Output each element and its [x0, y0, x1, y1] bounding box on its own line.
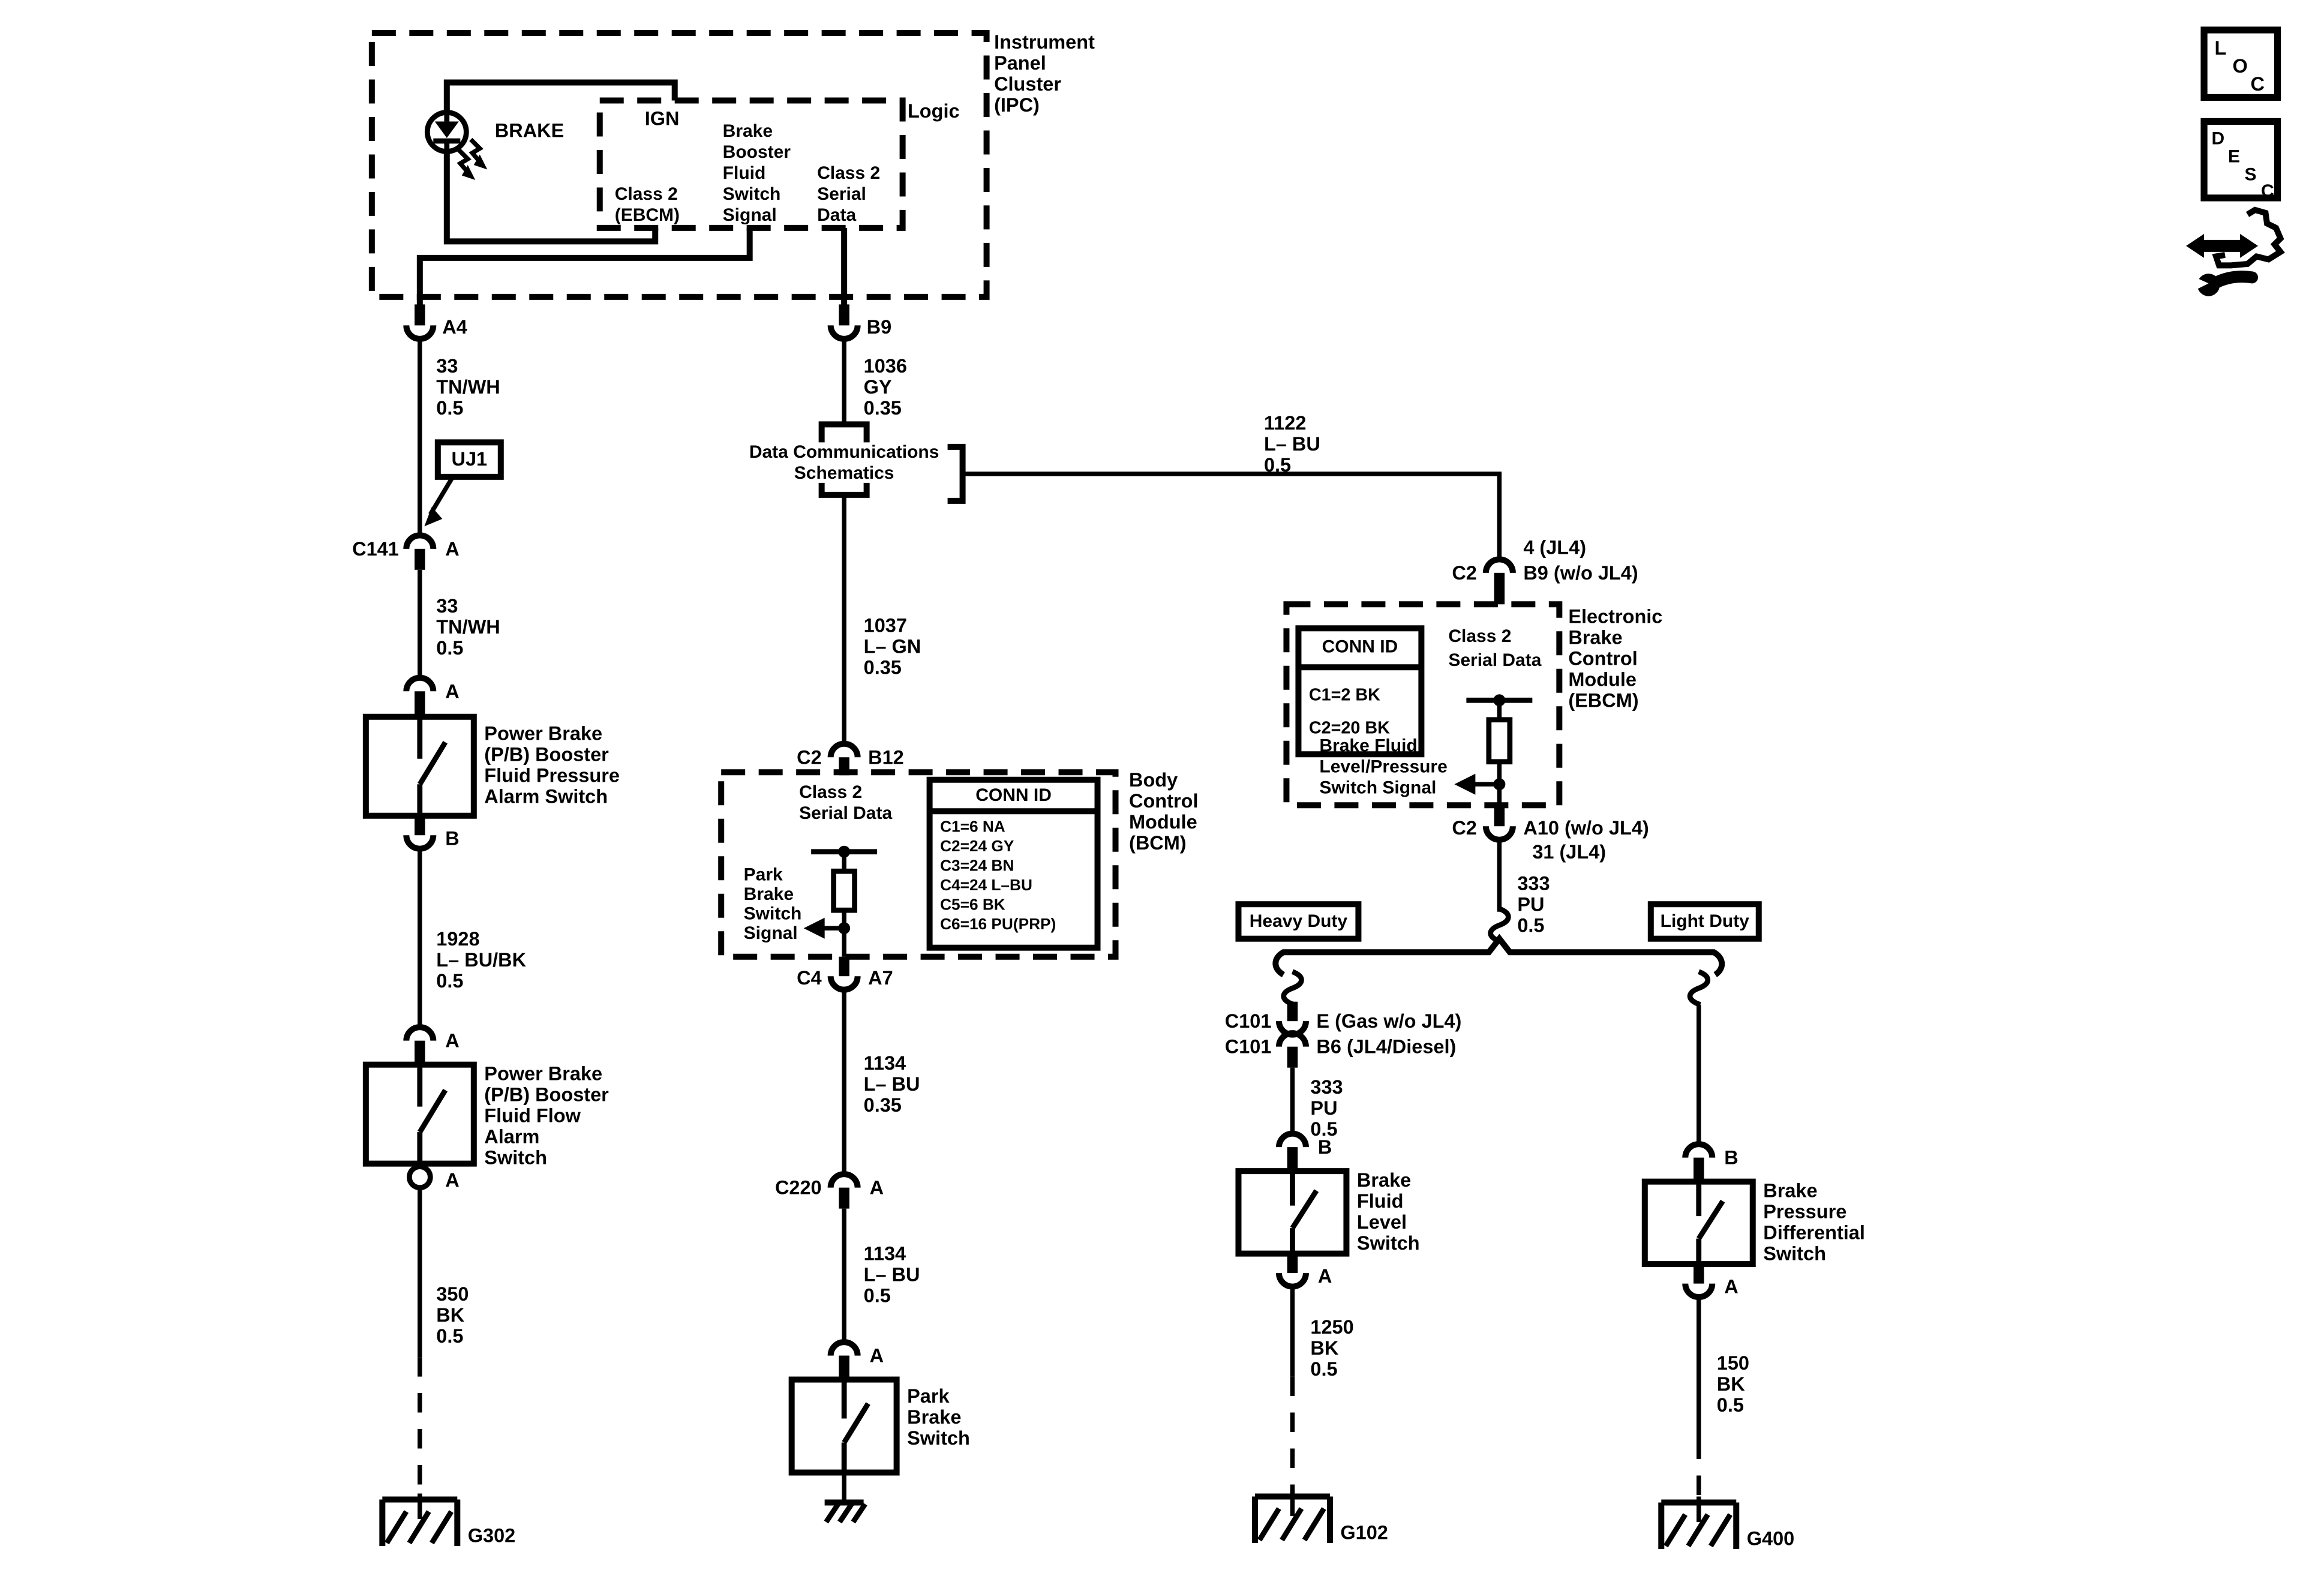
- switch-name-line: Fluid: [1357, 1190, 1404, 1212]
- connector-c4-a7: [831, 957, 858, 990]
- c141-pin-label: A: [445, 538, 459, 560]
- switch-name-line: Level: [1357, 1211, 1407, 1233]
- dcs-bracket-bottom: [822, 483, 867, 495]
- ground-hatch: [1304, 1509, 1323, 1540]
- switch-blade: [420, 1090, 445, 1132]
- connector-b: [406, 816, 433, 849]
- connector-a-level: [1279, 1254, 1306, 1287]
- wire-label: BK: [1717, 1373, 1745, 1395]
- desc-button[interactable]: D E S C: [2204, 121, 2277, 200]
- switch-name-line: Brake: [1357, 1169, 1411, 1191]
- c2-label: C2: [1452, 562, 1477, 584]
- brake-pressure-differential-switch: [1645, 1182, 1753, 1264]
- ipc-title-line: (IPC): [994, 94, 1040, 116]
- conn-id-row: C4=24 L–BU: [940, 876, 1032, 894]
- connector-c2-b9: [1486, 559, 1513, 604]
- dcs-label-line: Schematics: [794, 463, 894, 483]
- middle-branch: B9 1036 GY 0.35 Data Communications Sche…: [721, 304, 1198, 1522]
- connector-a4: [406, 304, 433, 338]
- jl4-31-label: 31 (JL4): [1532, 841, 1606, 863]
- connector-c141: [406, 535, 433, 569]
- connector-stub: [1694, 1264, 1704, 1283]
- conn-id-row: C1=6 NA: [940, 818, 1005, 836]
- wire-label: 0.5: [1264, 454, 1291, 476]
- bcm-name-line: (BCM): [1129, 832, 1187, 854]
- wire-label: TN/WH: [436, 616, 500, 638]
- a7-label: A7: [868, 967, 893, 989]
- signal-arrow-head: [804, 918, 825, 939]
- connector-b9: [831, 304, 858, 338]
- connector-a-park: [831, 1342, 858, 1379]
- light-duty-label: Light Duty: [1661, 911, 1750, 931]
- connector-cap: [1685, 1144, 1712, 1157]
- brake-fluid-level-switch: [1238, 1171, 1346, 1253]
- wire-label: TN/WH: [436, 376, 500, 398]
- connector-cap: [406, 678, 433, 691]
- pin-label: A: [1318, 1265, 1332, 1287]
- conn-id-title: CONN ID: [1322, 637, 1398, 657]
- class2-serial-line: Data: [817, 205, 856, 225]
- signal-arrow-head: [1454, 774, 1475, 795]
- wire-label: 0.5: [436, 397, 463, 419]
- wire-label: 150: [1717, 1352, 1749, 1374]
- wire-label: PU: [1517, 893, 1544, 915]
- brake-warning-schematic: Instrument Panel Cluster (IPC) Logic IGN…: [0, 0, 2324, 1573]
- ebcm-class2-line: Class 2: [1448, 626, 1511, 646]
- park-signal-line: Park: [744, 865, 783, 885]
- park-signal-line: Brake: [744, 884, 794, 904]
- conn-id-row: C2=20 BK: [1309, 718, 1390, 737]
- pin-label: A: [445, 1030, 459, 1052]
- ground-g400-icon: [1661, 1497, 1736, 1549]
- conn-id-title: CONN ID: [975, 785, 1052, 805]
- fluid-signal-line: Level/Pressure: [1319, 757, 1447, 777]
- wire-label: BK: [1310, 1337, 1338, 1359]
- switch-blade: [420, 742, 445, 784]
- brake-lamp-label: BRAKE: [495, 120, 565, 142]
- booster-signal-line: Booster: [723, 142, 791, 162]
- booster-signal-line: Signal: [723, 205, 777, 225]
- ground-label: G302: [468, 1525, 515, 1547]
- wire-label: 0.35: [864, 1094, 902, 1116]
- switch-name-line: Differential: [1763, 1222, 1865, 1244]
- wire-label: 0.5: [1310, 1358, 1337, 1380]
- ground-hatch: [1259, 1509, 1278, 1540]
- connector-b-diff: [1685, 1144, 1712, 1181]
- bcm-name-line: Control: [1129, 790, 1198, 812]
- ebcm-name-line: Control: [1568, 647, 1637, 669]
- switch-blade: [1699, 1201, 1723, 1238]
- connector-stub: [415, 304, 425, 325]
- fluid-signal-line: Switch Signal: [1319, 778, 1436, 798]
- pin-label: A: [445, 1169, 459, 1191]
- connector-stub: [415, 549, 425, 570]
- bcm-class2-line: Class 2: [799, 782, 862, 802]
- switch-blade: [1292, 1191, 1316, 1228]
- booster-signal-line: Fluid: [723, 163, 766, 183]
- a10-label: A10 (w/o JL4): [1523, 817, 1649, 839]
- b9-wo-label: B9 (w/o JL4): [1523, 562, 1638, 584]
- loc-letter: C: [2251, 73, 2265, 95]
- ground-hatch: [387, 1512, 406, 1543]
- c101-label: C101: [1225, 1010, 1272, 1032]
- ground-hatch: [826, 1504, 838, 1522]
- wire-label: L– BU: [1264, 433, 1320, 455]
- right-branch: 1122 L– BU 0.5 4 (JL4) C2 B9 (w/o JL4) C…: [963, 412, 1759, 975]
- wire-label: BK: [436, 1304, 464, 1326]
- wire-label: 1928: [436, 928, 479, 950]
- dcs-bracket-top: [822, 424, 867, 442]
- lamp-triangle: [435, 121, 459, 137]
- left-branch: A4 33 TN/WH 0.5 UJ1 C141 A 33 TN/WH 0.5 …: [352, 304, 620, 1546]
- connector-stub: [1287, 1002, 1298, 1021]
- resistor-body: [834, 871, 855, 910]
- pin-label: B: [1724, 1147, 1738, 1169]
- wire-label: 1036: [864, 355, 907, 377]
- wire-label: 0.5: [436, 637, 463, 659]
- pin-a4-label: A4: [442, 316, 467, 338]
- connector-stub: [1494, 805, 1505, 826]
- ebcm-internal-resistor: [1454, 694, 1532, 805]
- c101-label: C101: [1225, 1036, 1272, 1058]
- connector-stub: [1694, 1158, 1704, 1182]
- wire-label: 0.5: [1717, 1394, 1744, 1416]
- connector-a-flow: [406, 1027, 433, 1064]
- wire-label: 0.5: [864, 1285, 891, 1307]
- uj1-arrow-line: [430, 477, 452, 514]
- corner-icons: L O C D E S C: [2186, 30, 2280, 296]
- connector-stub: [839, 1356, 849, 1380]
- connector-cup: [406, 325, 433, 338]
- connector-c101-e: [1279, 1002, 1306, 1035]
- c4-label: C4: [797, 967, 822, 989]
- conn-id-row: C3=24 BN: [940, 857, 1014, 875]
- connector-stub: [415, 691, 425, 715]
- c141-label: C141: [352, 538, 399, 560]
- option-split-bar: [1275, 939, 1722, 975]
- wire-label: 1134: [864, 1243, 906, 1265]
- ebcm-name-line: Module: [1568, 668, 1637, 690]
- connector-cap: [1486, 559, 1513, 572]
- connector-stub: [1287, 1047, 1298, 1068]
- class2-ebcm-line: Class 2: [615, 184, 678, 204]
- switch-name-line: Power Brake: [484, 722, 602, 744]
- bcm-name-line: Module: [1129, 811, 1197, 833]
- class2-ebcm-line: (EBCM): [615, 205, 680, 225]
- booster-signal-line: Switch: [723, 184, 781, 204]
- ground-hatch: [1666, 1515, 1685, 1546]
- connector-stub: [1494, 573, 1505, 604]
- ebcm-name-line: Brake: [1568, 626, 1622, 648]
- connector-cap: [406, 535, 433, 548]
- wire-label: 1250: [1310, 1316, 1353, 1338]
- connector-cup: [1685, 1284, 1712, 1297]
- switch-name-line: Pressure: [1763, 1201, 1846, 1223]
- ground-hatch: [1711, 1515, 1730, 1546]
- connector-cap: [1279, 1033, 1306, 1046]
- uj1-label: UJ1: [452, 448, 488, 470]
- ring-terminal: [409, 1167, 430, 1188]
- wire-label: L– BU/BK: [436, 949, 526, 971]
- ground-hatch: [853, 1504, 865, 1522]
- connector-c2-a10: [1486, 805, 1513, 839]
- c2-label: C2: [797, 746, 822, 768]
- wire-label: 0.5: [436, 1325, 463, 1347]
- pin-b9-label: B9: [867, 316, 892, 338]
- ground-label: G400: [1747, 1528, 1794, 1550]
- connector-a-pressure: [406, 678, 433, 715]
- ground-hatch: [432, 1512, 451, 1543]
- desc-letter: D: [2212, 128, 2225, 148]
- ipc-title-line: Cluster: [994, 73, 1061, 95]
- connector-stub: [839, 304, 849, 325]
- bcm-internal-resistor: [804, 846, 877, 957]
- ground-g302-icon: [382, 1494, 457, 1546]
- ign-label: IGN: [645, 108, 680, 130]
- connector-stub: [1287, 1147, 1298, 1171]
- desc-letter: E: [2228, 146, 2240, 166]
- switch-name-line: Alarm: [484, 1126, 539, 1148]
- wire-label: PU: [1310, 1097, 1337, 1119]
- conn-id-row: C5=6 BK: [940, 896, 1005, 914]
- pin-label: B: [445, 827, 459, 849]
- switch-name-line: (P/B) Booster: [484, 1084, 609, 1106]
- wire-label: 1134: [864, 1052, 906, 1074]
- wire-label: 0.35: [864, 397, 902, 419]
- park-signal-line: Switch: [744, 904, 802, 924]
- pin-label: A: [1724, 1276, 1738, 1298]
- c220-label: C220: [775, 1177, 822, 1199]
- ebcm-class2-line: Serial Data: [1448, 650, 1541, 670]
- switch-blade: [844, 1404, 868, 1443]
- loc-letter: O: [2233, 55, 2248, 77]
- connector-cup: [406, 835, 433, 848]
- connector-cap: [406, 1027, 433, 1040]
- pin-label: A: [445, 680, 459, 702]
- part-outline-icon: [2216, 210, 2280, 265]
- switch-name-line: Switch: [907, 1427, 970, 1449]
- wire-label: GY: [864, 376, 892, 398]
- wire-label: 333: [1517, 872, 1550, 894]
- wire-label: 33: [436, 355, 458, 377]
- wiring-diagram-page: Instrument Panel Cluster (IPC) Logic IGN…: [0, 0, 2324, 1573]
- pin-label: B: [1318, 1136, 1332, 1158]
- wire-label: 0.5: [436, 970, 463, 992]
- connector-cap: [831, 744, 858, 757]
- pin-label: A: [870, 1345, 884, 1367]
- wire-label: 33: [436, 595, 458, 617]
- conn-id-row: C1=2 BK: [1309, 685, 1380, 704]
- pin-e-label: E (Gas w/o JL4): [1316, 1010, 1461, 1032]
- ipc-module: Instrument Panel Cluster (IPC) Logic IGN…: [372, 31, 1095, 306]
- bcm-module: Class 2 Serial Data CONN ID C1=6 NA C2=2…: [721, 772, 1115, 956]
- uj1-arrow-head: [424, 507, 442, 526]
- connector-cup: [831, 976, 858, 989]
- wire-label: 333: [1310, 1076, 1343, 1098]
- switch-name-line: Switch: [1763, 1243, 1826, 1265]
- connector-stub: [1287, 1254, 1298, 1273]
- wire-label: 1122: [1264, 412, 1306, 434]
- park-brake-switch: [792, 1380, 897, 1473]
- switch-name-line: Brake: [907, 1406, 961, 1428]
- light-duty-branch: B Brake Pressure Differential Switch A 1…: [1645, 972, 1865, 1550]
- class2-serial-line: Serial: [817, 184, 866, 204]
- switch-name-line: Park: [907, 1385, 950, 1407]
- connector-c220: [831, 1174, 858, 1208]
- heavy-duty-branch: C101 E (Gas w/o JL4) C101 B6 (JL4/Diesel…: [1225, 972, 1462, 1544]
- booster-signal-line: Brake: [723, 121, 773, 141]
- ebcm-name-line: (EBCM): [1568, 689, 1638, 711]
- switch-name-line: (P/B) Booster: [484, 743, 609, 765]
- ipc-logic-label: Logic: [908, 100, 960, 122]
- conn-id-row: C6=16 PU(PRP): [940, 915, 1056, 933]
- connector-stub: [839, 1188, 849, 1209]
- jl4-4-label: 4 (JL4): [1523, 536, 1586, 558]
- pressure-alarm-switch: [366, 717, 474, 816]
- offpage-reference-dcs: Data Communications Schematics: [749, 424, 963, 500]
- connector-cup: [1279, 1273, 1306, 1286]
- switch-name-line: Brake: [1763, 1180, 1817, 1202]
- ground-park-icon: [825, 1473, 865, 1522]
- connector-cap: [831, 1342, 858, 1355]
- connector-stub: [839, 957, 849, 976]
- ground-label: G102: [1340, 1522, 1388, 1544]
- fluid-signal-line: Brake Fluid: [1319, 736, 1417, 756]
- connector-stub: [415, 816, 425, 835]
- connector-c101-b6: [1279, 1033, 1306, 1067]
- switch-name-line: Switch: [1357, 1232, 1420, 1254]
- bcm-class2-line: Serial Data: [799, 803, 892, 823]
- conn-id-row: C2=24 GY: [940, 837, 1014, 855]
- flow-alarm-switch: [366, 1065, 474, 1164]
- wire-label: L– GN: [864, 635, 921, 657]
- uj1-callout: UJ1: [424, 442, 500, 526]
- bcm-name-line: Body: [1129, 769, 1178, 791]
- pin-b6-label: B6 (JL4/Diesel): [1316, 1036, 1456, 1058]
- ground-g102-icon: [1255, 1491, 1330, 1543]
- wire-1122: [963, 474, 1500, 559]
- desc-letter: C: [2261, 181, 2274, 201]
- ebcm-module: CONN ID C1=2 BK C2=20 BK Class 2 Serial …: [1286, 604, 1559, 805]
- heavy-duty-tag: Heavy Duty: [1238, 904, 1358, 938]
- light-duty-tag: Light Duty: [1651, 904, 1759, 938]
- connector-cup: [1486, 826, 1513, 839]
- c220-pin-label: A: [870, 1177, 884, 1199]
- c2-label: C2: [1452, 817, 1477, 839]
- brake-lamp-icon: [427, 112, 487, 179]
- loc-letter: L: [2215, 37, 2227, 59]
- park-signal-line: Signal: [744, 923, 798, 943]
- wrench-icon: [2215, 277, 2252, 283]
- option-squiggle: [1690, 972, 1708, 1005]
- switch-name-line: Switch: [484, 1147, 547, 1169]
- connector-cap: [831, 1174, 858, 1187]
- resistor-body: [1489, 720, 1510, 762]
- dcs-bracket-right: [948, 447, 963, 501]
- wire-label: 1037: [864, 614, 907, 636]
- dcs-label-line: Data Communications: [749, 442, 939, 462]
- ipc-title-line: Instrument: [994, 31, 1095, 53]
- wire-label: 0.35: [864, 656, 902, 678]
- troubleshoot-icon[interactable]: [2186, 210, 2280, 296]
- switch-name-line: Fluid Pressure: [484, 764, 620, 786]
- wire-label: L– BU: [864, 1264, 920, 1286]
- ipc-title-line: Panel: [994, 52, 1046, 74]
- class2-serial-line: Class 2: [817, 163, 880, 183]
- desc-letter: S: [2245, 164, 2257, 184]
- switch-name-line: Power Brake: [484, 1063, 602, 1085]
- b12-label: B12: [868, 746, 904, 768]
- ground-hatch: [840, 1504, 852, 1522]
- wire-label: 350: [436, 1283, 469, 1305]
- loc-button[interactable]: L O C: [2204, 30, 2277, 97]
- connector-a-diff: [1685, 1264, 1712, 1297]
- connector-cup: [831, 325, 858, 338]
- ebcm-name-line: Electronic: [1568, 605, 1662, 627]
- connector-b-level: [1279, 1134, 1306, 1171]
- option-squiggle: [1284, 972, 1302, 1005]
- wire-label: L– BU: [864, 1073, 920, 1095]
- switch-name-line: Fluid Flow: [484, 1105, 581, 1127]
- connector-stub: [415, 1041, 425, 1065]
- switch-name-line: Alarm Switch: [484, 785, 608, 807]
- wire-label: 0.5: [1517, 914, 1544, 936]
- connector-cap: [1279, 1134, 1306, 1147]
- heavy-duty-label: Heavy Duty: [1250, 911, 1348, 931]
- bcm-conn-id-table: CONN ID C1=6 NA C2=24 GY C3=24 BN C4=24 …: [930, 780, 1098, 948]
